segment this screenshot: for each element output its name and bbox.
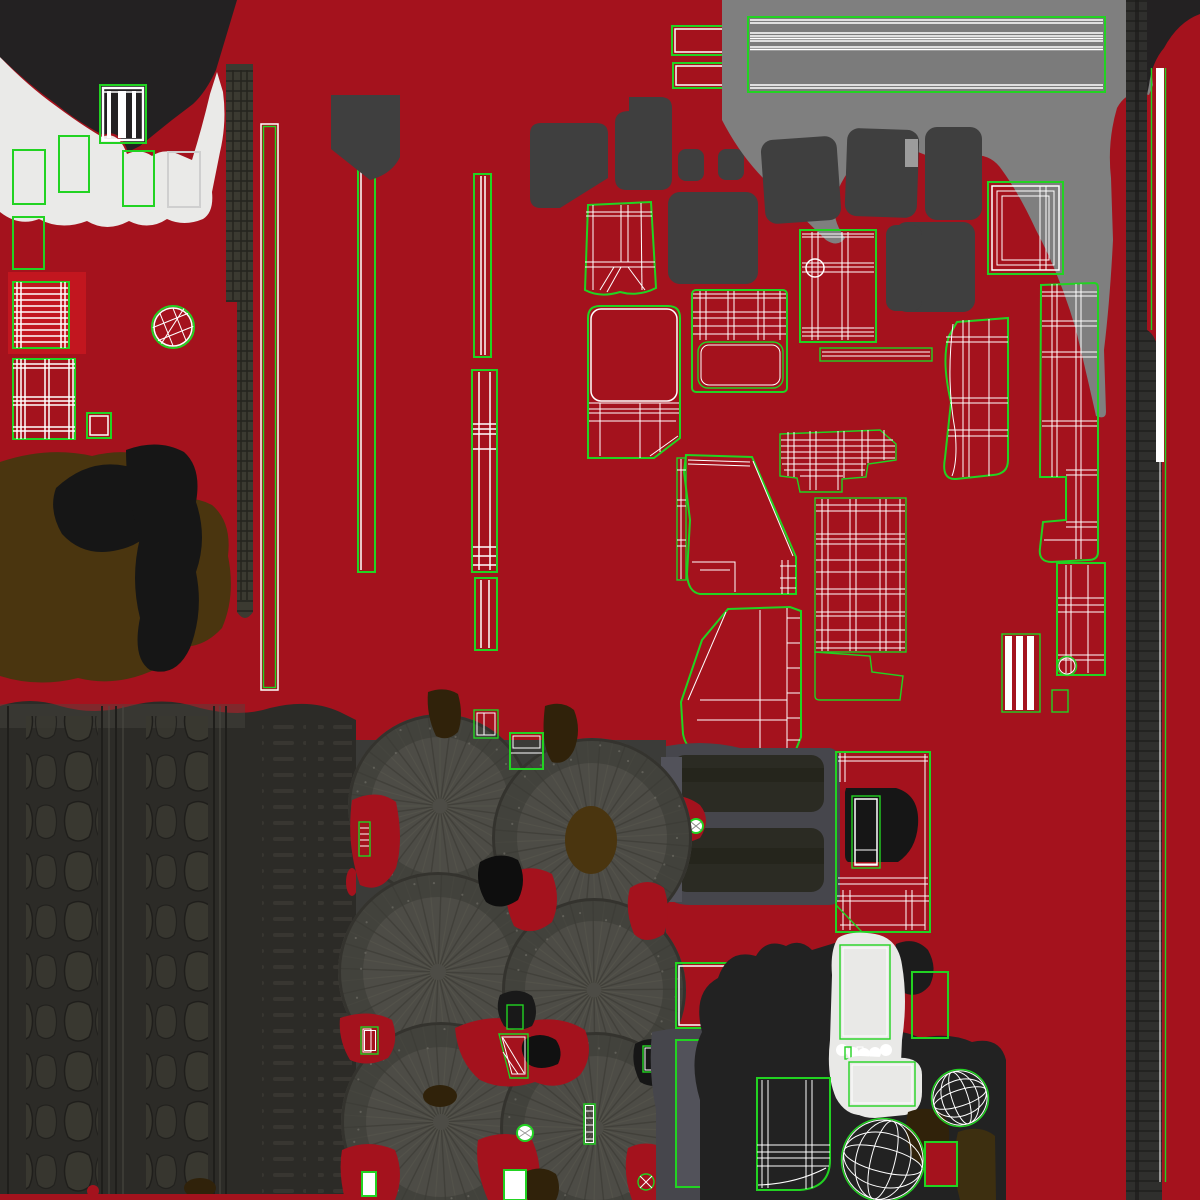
white-uv-chip [362, 1172, 376, 1196]
gray-tip [905, 139, 918, 167]
tiny-sphere-uv [517, 1125, 533, 1141]
hub-brown-egg [565, 806, 617, 874]
wheel-rim-uv-part [107, 91, 111, 138]
brown-blob [523, 1168, 559, 1200]
tire-sidewall-circle-part [429, 727, 431, 729]
seat-silhouette [925, 127, 982, 220]
tire-sidewall-circle-part [398, 1049, 400, 1051]
tire-sidewall-circle-part [517, 969, 519, 971]
tire-sidewall-circle-part [450, 1197, 452, 1199]
white-uv-chip-part [504, 1170, 526, 1200]
tire-sidewall-circle-part [433, 882, 435, 884]
red-uv-rect-part [925, 1142, 957, 1186]
tire-sidewall-circle-part [395, 752, 397, 754]
tire-sidewall-circle-part [627, 760, 629, 762]
tire-sidewall-circle-part [399, 729, 401, 731]
tire-sidewall-circle-part [364, 781, 366, 783]
tire-sidewall-circle-part [654, 877, 656, 879]
tire-sidewall-circle-part [661, 970, 663, 972]
tire-sidewall-circle-part [525, 954, 527, 956]
tire-sidewall-circle-part [564, 1194, 566, 1196]
tire-sidewall-circle-part [355, 937, 357, 939]
tire-sidewall-circle-part [598, 1047, 600, 1049]
tire-sidewall-circle-part [366, 921, 368, 923]
seat-silhouette [760, 135, 842, 224]
seat-silhouette [886, 225, 922, 311]
tire-sidewall-circle-part [443, 1028, 445, 1030]
running-board-region-part [674, 848, 824, 864]
tire-sidewall-circle-part [535, 948, 537, 950]
ribbed-sill-uv-part [748, 17, 1105, 92]
seat-silhouette [678, 149, 704, 181]
tire-sidewall-circle-part [676, 837, 678, 839]
atlas-scene [0, 0, 1200, 1200]
tire-sidewall-circle-part [461, 894, 463, 896]
tire-sidewall-circle-part [599, 744, 601, 746]
tire-sidewall-circle-part [614, 1052, 616, 1054]
tire-sidewall-circle-part [476, 902, 478, 904]
tread-block-column [26, 716, 98, 1194]
seat-silhouette [718, 149, 744, 180]
tire-sidewall-circle-part [661, 1020, 663, 1022]
white-seam-strip [1156, 68, 1164, 462]
teeth-row-part [836, 1044, 848, 1056]
white-bars-uv-part [1016, 636, 1023, 710]
tire-sidewall-circle-part [353, 1141, 355, 1143]
tire-sidewall-circle-part [516, 930, 518, 932]
tire-sidewall-circle-part [356, 790, 358, 792]
tire-sidewall-circle-part [357, 1128, 359, 1130]
sidewall-circles [338, 714, 692, 1200]
tire-sidewall-circle-part [518, 807, 520, 809]
tire-sidewall-circle-part [505, 763, 507, 765]
tire-sidewall-circle-part [641, 771, 643, 773]
tire-sidewall-circle-part [672, 855, 674, 857]
red-pocket [628, 882, 668, 940]
red-pocket [340, 1013, 395, 1063]
tire-sidewall-circle-part [360, 968, 362, 970]
tire-sidewalls [338, 689, 692, 1200]
tire-sidewall-circle-part [619, 925, 621, 927]
tire-sidewall-circle-part [356, 997, 358, 999]
tire-sidewall-circle-part [663, 863, 665, 865]
tire-sidewall-circle-part [360, 1111, 362, 1113]
ribbed-sill-uv [748, 17, 1105, 92]
tire-sidewall-circle-part [496, 748, 498, 750]
tire-sidewall-circle-part [373, 767, 375, 769]
tire-sidewall-circle-part [570, 759, 572, 761]
white-bars-uv-part [1005, 636, 1012, 710]
running-board-region-part [672, 768, 824, 782]
tire-sidewall-circle-part [605, 919, 607, 921]
tire-sidewall-circle-part [507, 912, 509, 914]
white-uv-chip-part [362, 1172, 376, 1196]
tire-sidewall-circle-part [508, 1116, 510, 1118]
tire-sidewall-circle-part [511, 823, 513, 825]
tire-sidewall-circle-part [514, 1098, 516, 1100]
black-blob [498, 991, 536, 1030]
tire-sidewall-circle-part [654, 797, 656, 799]
teeth-row-part [880, 1044, 892, 1056]
tread-block-column [146, 716, 208, 1194]
red-uv-rect [925, 1142, 957, 1186]
tire-sidewall-circle-part [357, 1078, 359, 1080]
tire-sidewall-circle-part [468, 742, 470, 744]
tire-sidewall-circle-part [553, 763, 555, 765]
white-uv-chip [504, 1170, 526, 1200]
tire-sidewall-circle-part [503, 852, 505, 854]
wheel-rim-uv-part [118, 91, 126, 138]
texture-atlas-canvas [0, 0, 1200, 1200]
tire-sidewall-circle-part [392, 906, 394, 908]
tire-sidewall-circle-part [579, 912, 581, 914]
black-blob [478, 855, 523, 906]
tire-sidewall-circle-part [618, 750, 620, 752]
brown-strip [954, 1129, 996, 1200]
tire-sidewall-circle-part [562, 915, 564, 917]
tire-sidewall-circle-part [407, 900, 409, 902]
tire-sidewall-circle-part [413, 883, 415, 885]
white-bars-uv-part [1027, 636, 1034, 710]
tire-sidewall-circle-part [546, 938, 548, 940]
tire-sidewall-circle-part [427, 1047, 429, 1049]
red-pocket [350, 794, 400, 887]
wheel-rim-uv-part [132, 91, 136, 138]
tread-sipe-column [262, 716, 306, 1194]
tire-sidewall-circle-part [540, 764, 542, 766]
tire-sidewall-circle-part [364, 952, 366, 954]
tire-sidewall-circle-part [467, 1195, 469, 1197]
tire-sidewall-circle-part [657, 955, 659, 957]
hub-brown-patch [423, 1085, 457, 1107]
tire-sidewall-circle-part [678, 805, 680, 807]
tire-sidewall-circle-part [524, 775, 526, 777]
tire-sidewall-circle-part [454, 736, 456, 738]
seat-silhouette [668, 192, 758, 284]
